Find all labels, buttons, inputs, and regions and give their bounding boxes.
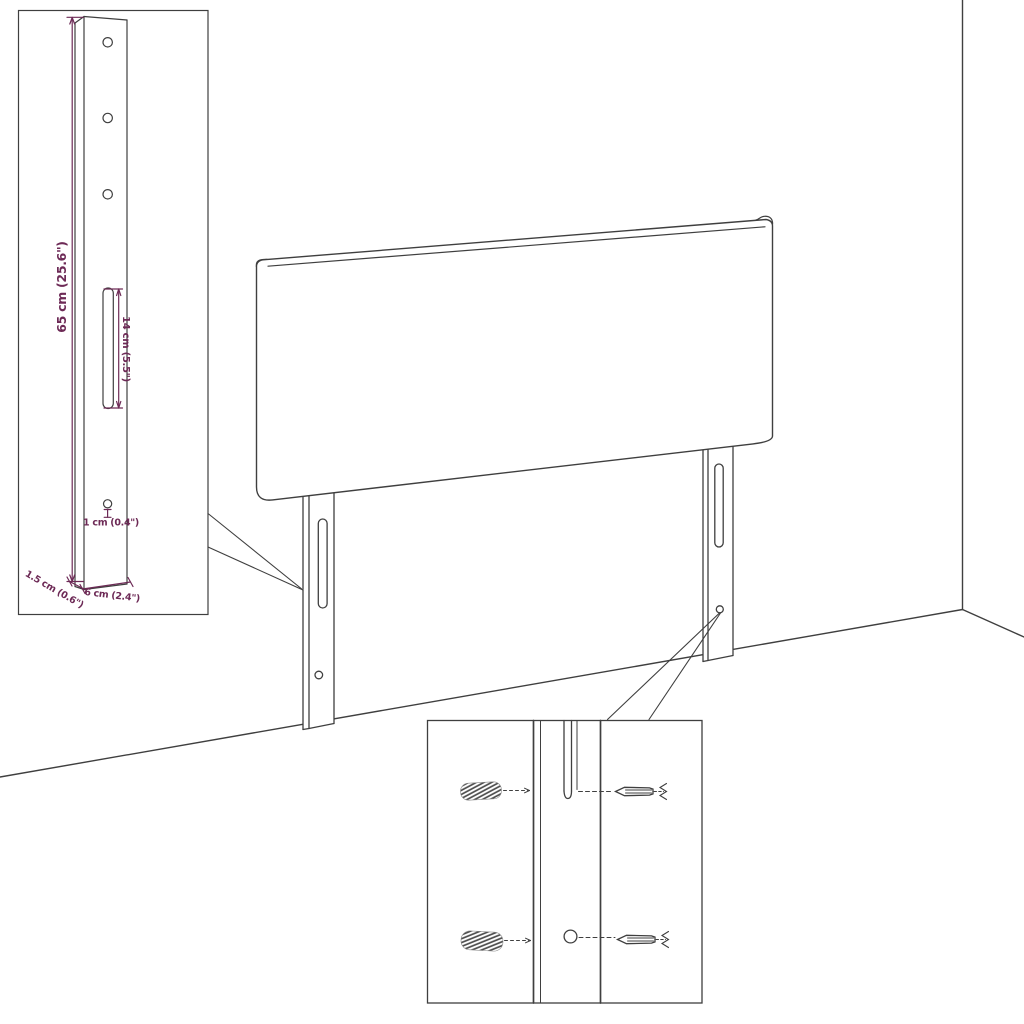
wall-plug-icon bbox=[460, 781, 502, 800]
hardware-detail-inset bbox=[428, 721, 703, 1004]
slot-length-label: 14 cm (5.5") bbox=[120, 316, 130, 382]
floor-edge-right bbox=[963, 610, 1024, 638]
leg-height-label: 65 cm (25.6") bbox=[56, 241, 69, 332]
headboard-right-leg bbox=[703, 436, 733, 662]
hardware-inset-frame bbox=[428, 721, 703, 1004]
hole-diameter-label: 1 cm (0.4") bbox=[83, 518, 139, 528]
headboard-left-leg bbox=[303, 484, 334, 730]
product-dimension-diagram: 65 cm (25.6") 14 cm (5.5") 1 cm (0.4") 1… bbox=[0, 0, 1024, 1024]
diagram-canvas bbox=[0, 0, 1024, 1024]
leg-callout-wedge bbox=[209, 512, 304, 590]
headboard-panel bbox=[256, 216, 772, 500]
wall-plug-icon bbox=[461, 930, 504, 951]
